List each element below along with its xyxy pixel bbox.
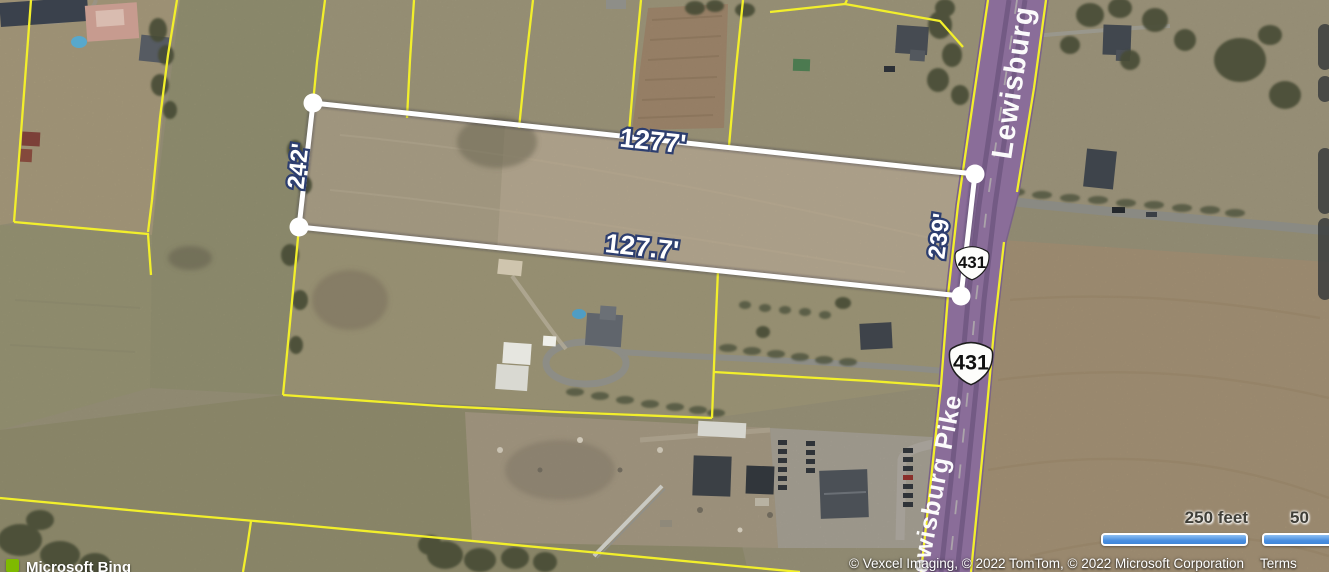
aerial-map-canvas[interactable]: 1277' 127.7' 242' 239' Lewisburg P Lewis… <box>0 0 1329 572</box>
svg-text:431: 431 <box>953 350 989 375</box>
attribution-providers: © Vexcel Imaging, © 2022 TomTom, © 2022 … <box>849 556 1244 571</box>
right-edge-panel-fragment <box>1318 148 1329 214</box>
measurement-vertex[interactable] <box>304 94 323 113</box>
measurement-vertex[interactable] <box>966 165 985 184</box>
map-attribution: © Vexcel Imaging, © 2022 TomTom, © 2022 … <box>849 556 1297 571</box>
scale-label-feet: 250 feet <box>1100 508 1248 528</box>
bing-maps-aerial-view[interactable]: 1277' 127.7' 242' 239' Lewisburg P Lewis… <box>0 0 1329 572</box>
svg-text:431: 431 <box>958 253 986 272</box>
bing-logo[interactable]: Microsoft Bing <box>6 559 131 572</box>
scale-bar-metric-segment <box>1262 533 1329 546</box>
right-edge-panel-fragment <box>1318 218 1329 300</box>
scale-label-metric: 50 <box>1290 508 1329 528</box>
scale-bar-feet-segment <box>1101 533 1248 546</box>
bing-logo-text: Microsoft Bing <box>26 559 131 572</box>
measurement-vertex[interactable] <box>290 218 309 237</box>
right-edge-panel-fragment <box>1318 76 1329 102</box>
terms-link[interactable]: Terms <box>1260 556 1297 571</box>
measurement-vertex[interactable] <box>952 287 971 306</box>
photo-texture <box>0 0 1329 572</box>
measurement-label-left: 242' <box>283 142 315 190</box>
measurement-label-right: 239' <box>923 212 955 261</box>
right-edge-panel-fragment <box>1318 24 1329 70</box>
bing-logo-icon <box>6 559 19 572</box>
